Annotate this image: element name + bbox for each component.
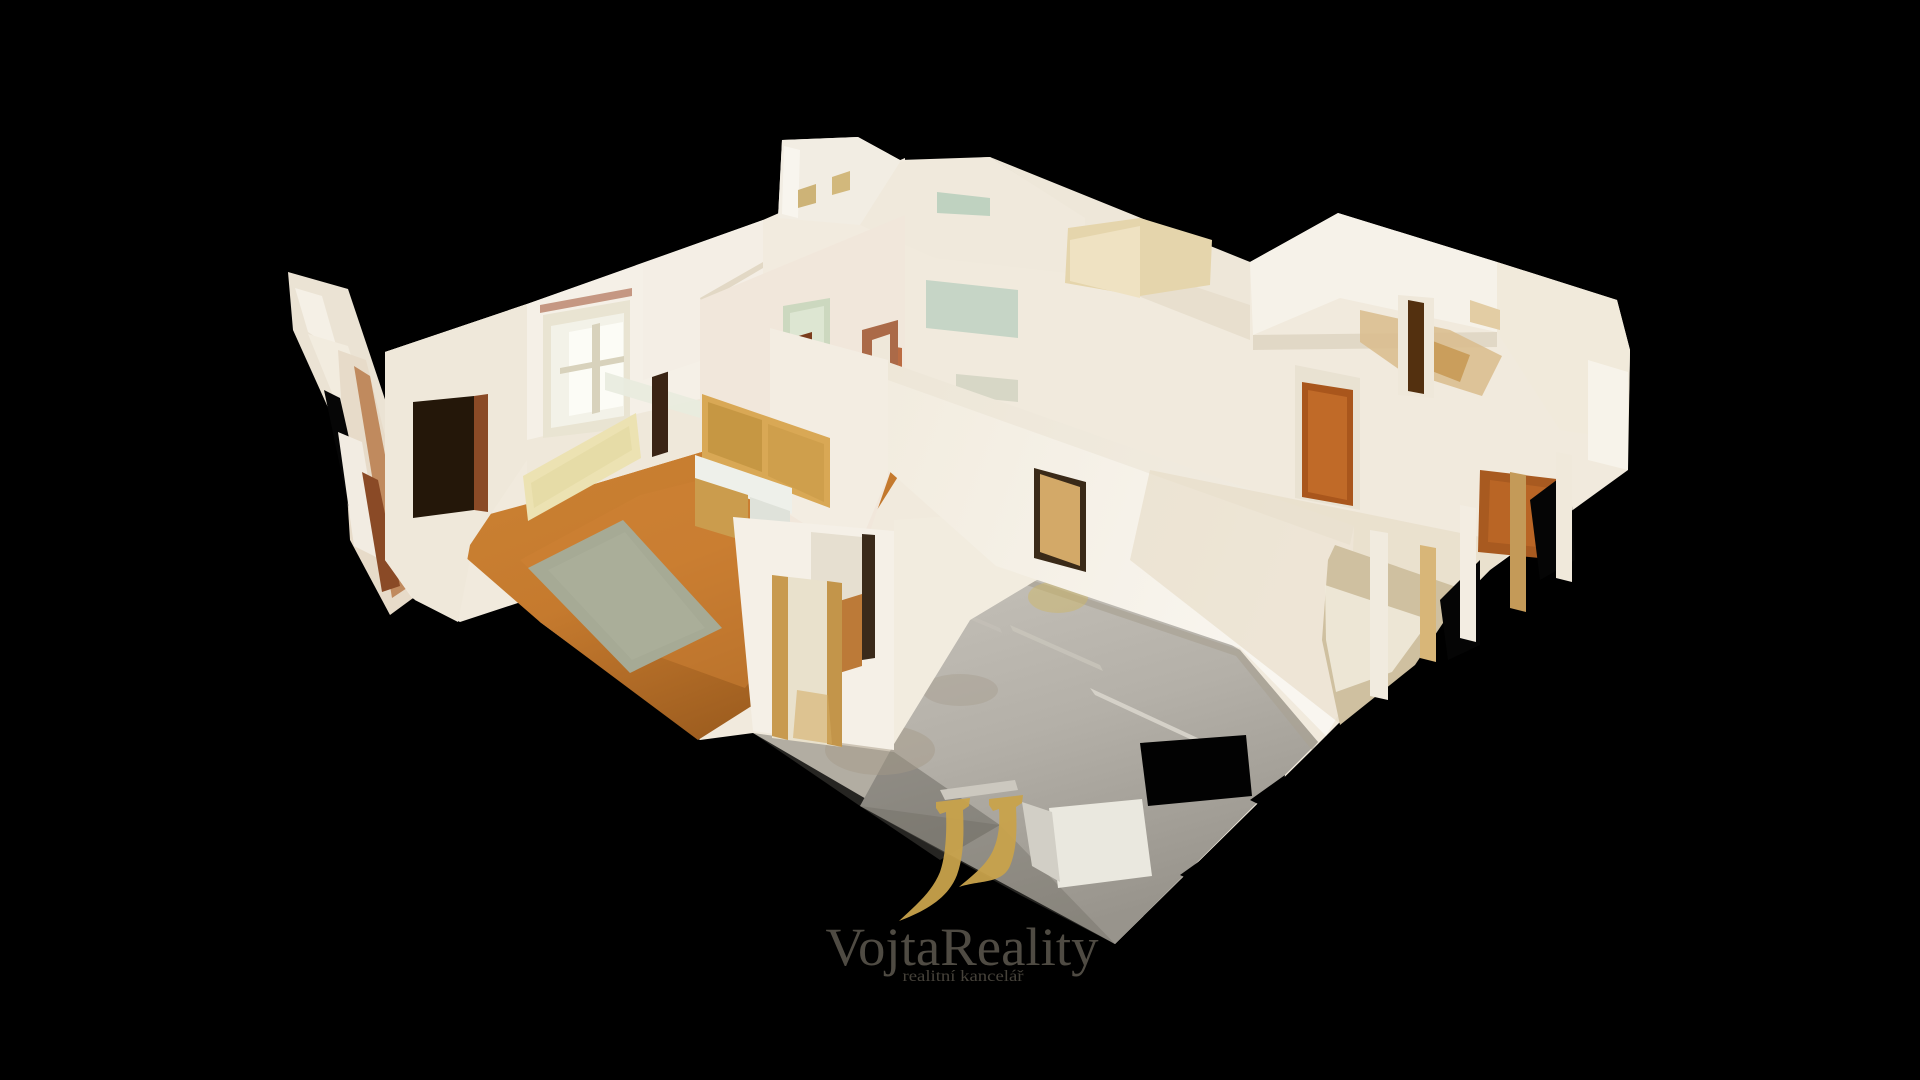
svg-text:realitní kancelář: realitní kancelář (903, 968, 1025, 985)
